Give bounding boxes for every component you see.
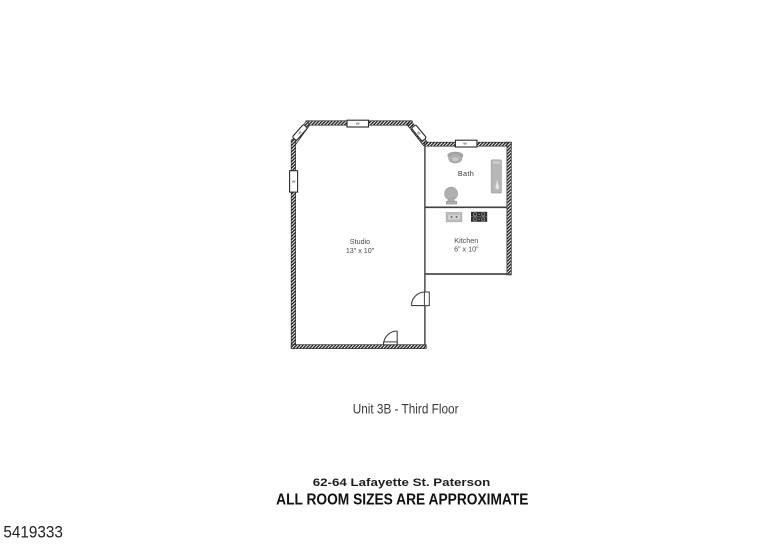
svg-text:Bath: Bath [458, 169, 474, 178]
svg-text:5419333: 5419333 [3, 522, 63, 541]
svg-text:13” x 10”: 13” x 10” [346, 246, 375, 255]
svg-text:ALL ROOM SIZES ARE APPROXIMATE: ALL ROOM SIZES ARE APPROXIMATE [276, 491, 529, 508]
svg-text:Studio: Studio [350, 237, 370, 246]
svg-text:Unit 3B - Third Floor: Unit 3B - Third Floor [353, 401, 459, 417]
svg-text:6” x 10”: 6” x 10” [454, 244, 479, 253]
svg-text:62-64 Lafayette St. Paterson: 62-64 Lafayette St. Paterson [313, 477, 491, 489]
